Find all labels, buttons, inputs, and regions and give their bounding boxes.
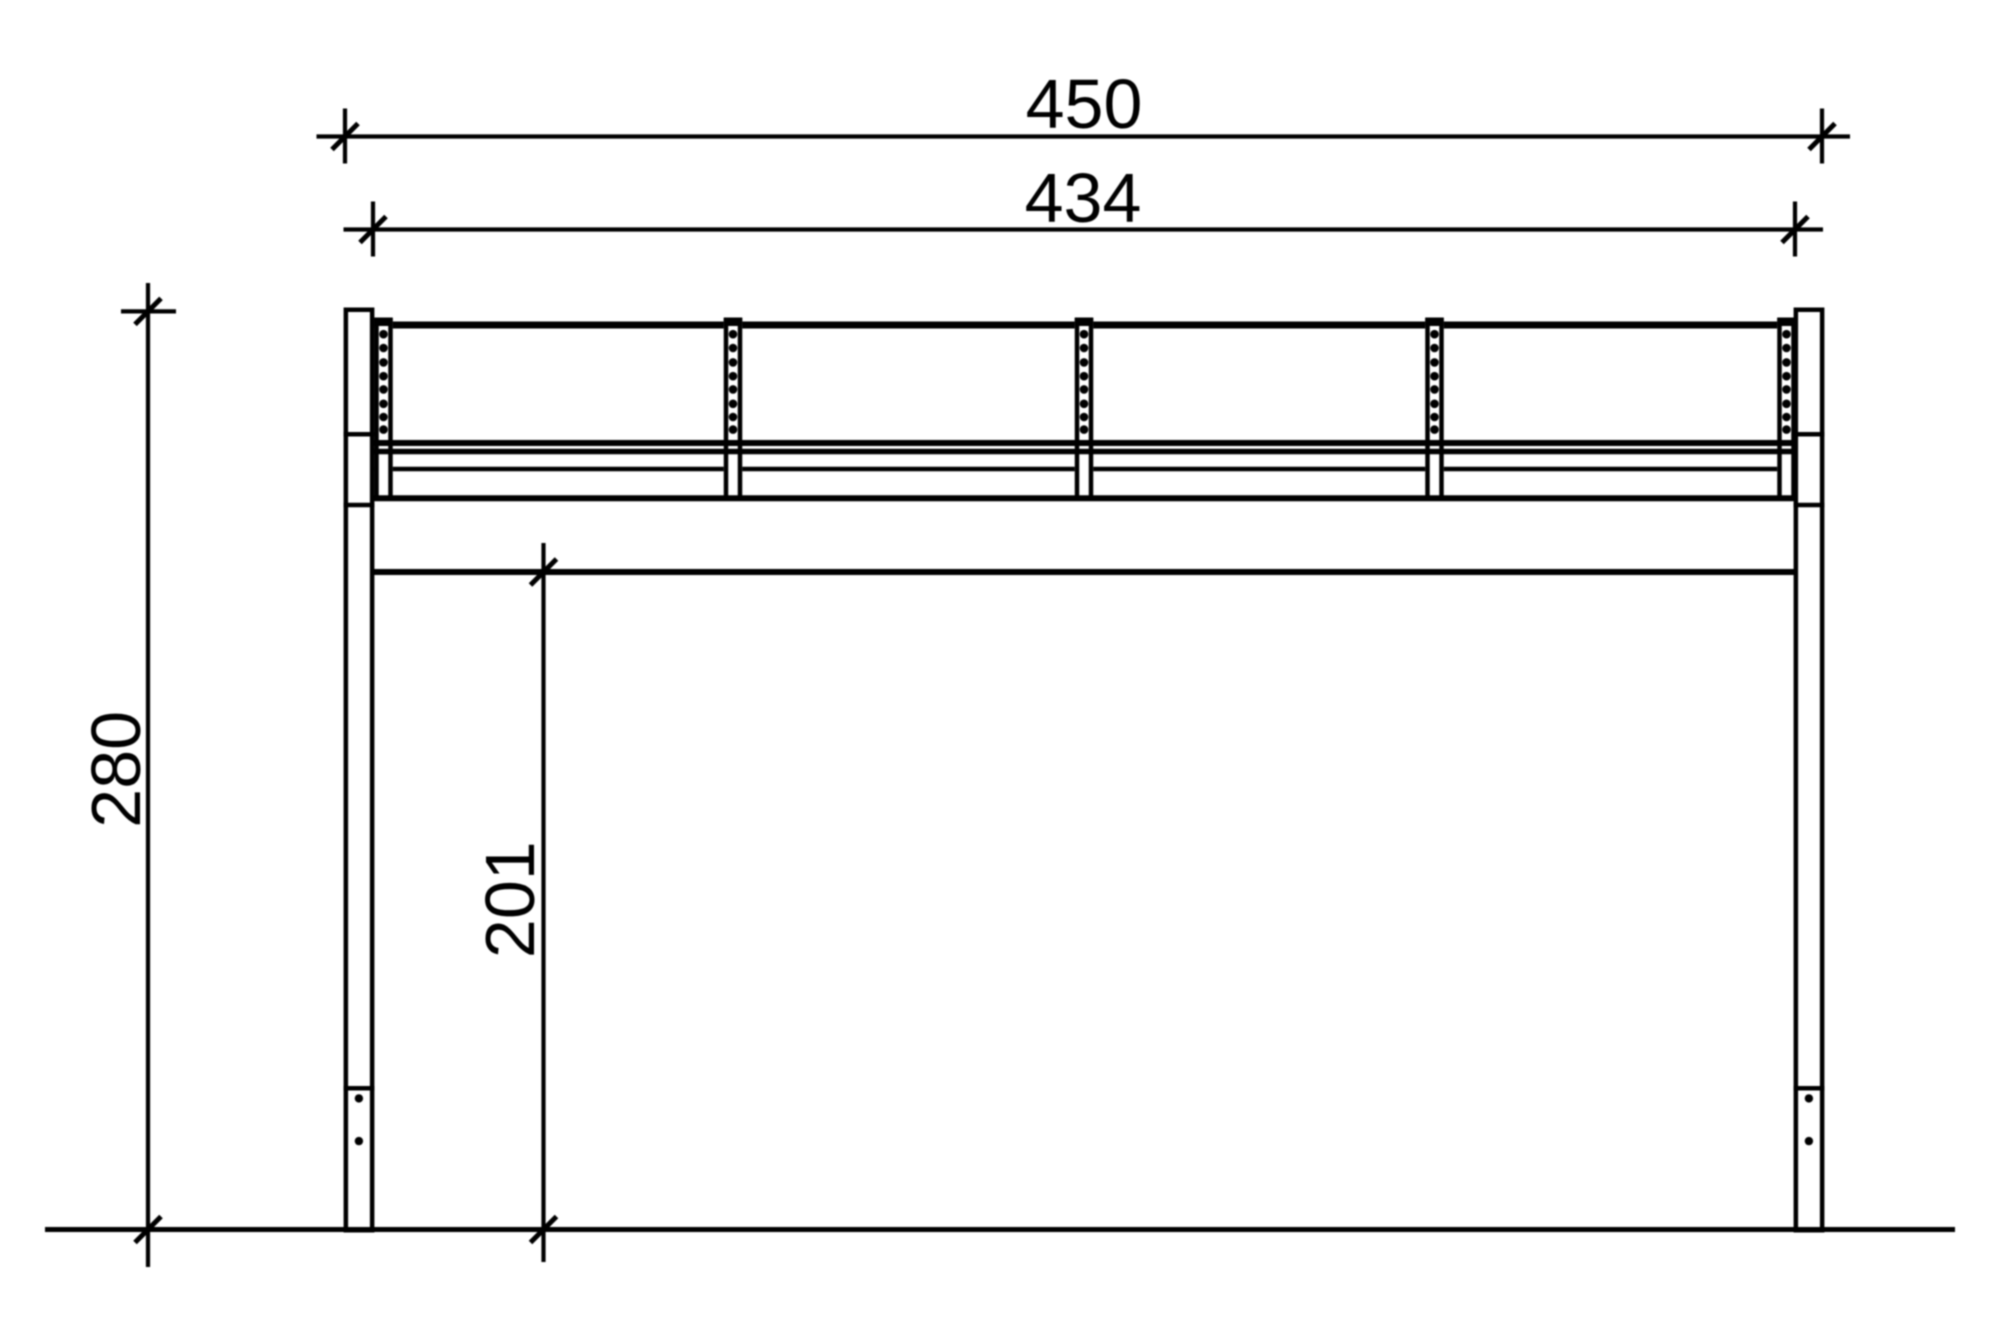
svg-text:280: 280 [77, 711, 155, 828]
svg-text:450: 450 [1026, 65, 1143, 143]
svg-text:434: 434 [1025, 159, 1142, 237]
svg-text:201: 201 [471, 841, 549, 958]
